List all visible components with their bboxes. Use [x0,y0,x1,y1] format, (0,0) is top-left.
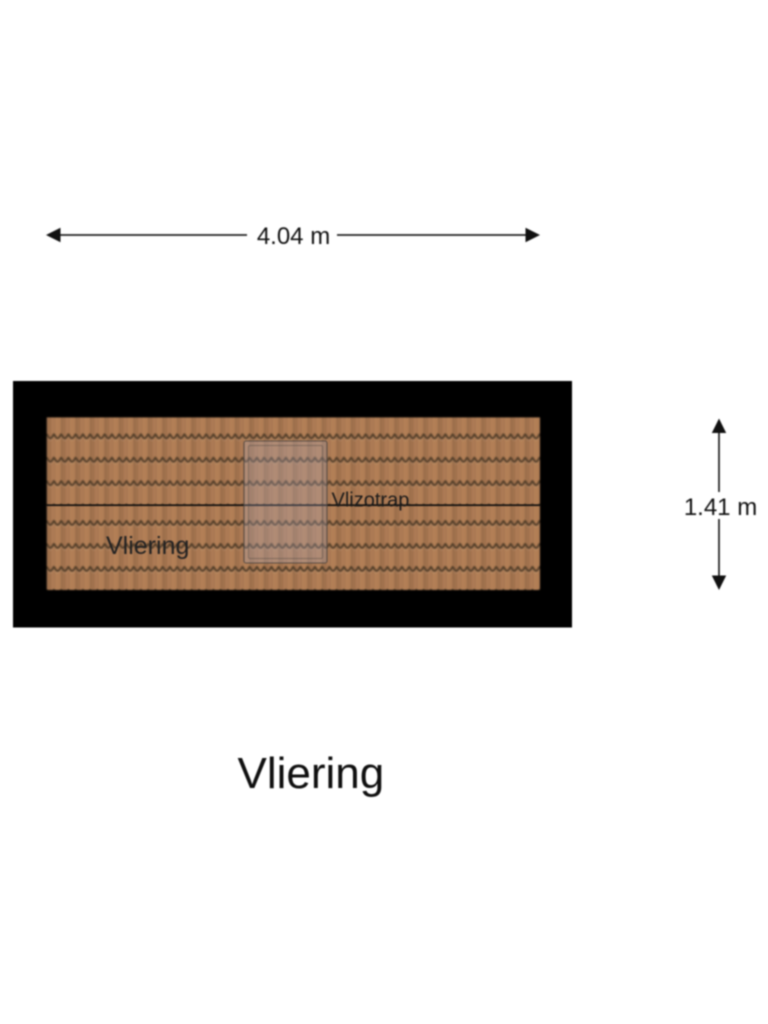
svg-text:Vliering: Vliering [238,749,385,798]
svg-text:4.04 m: 4.04 m [257,223,330,250]
svg-text:1.41 m: 1.41 m [684,494,757,521]
svg-text:Vliering: Vliering [106,532,189,560]
svg-text:Vlizotrap: Vlizotrap [332,490,410,512]
